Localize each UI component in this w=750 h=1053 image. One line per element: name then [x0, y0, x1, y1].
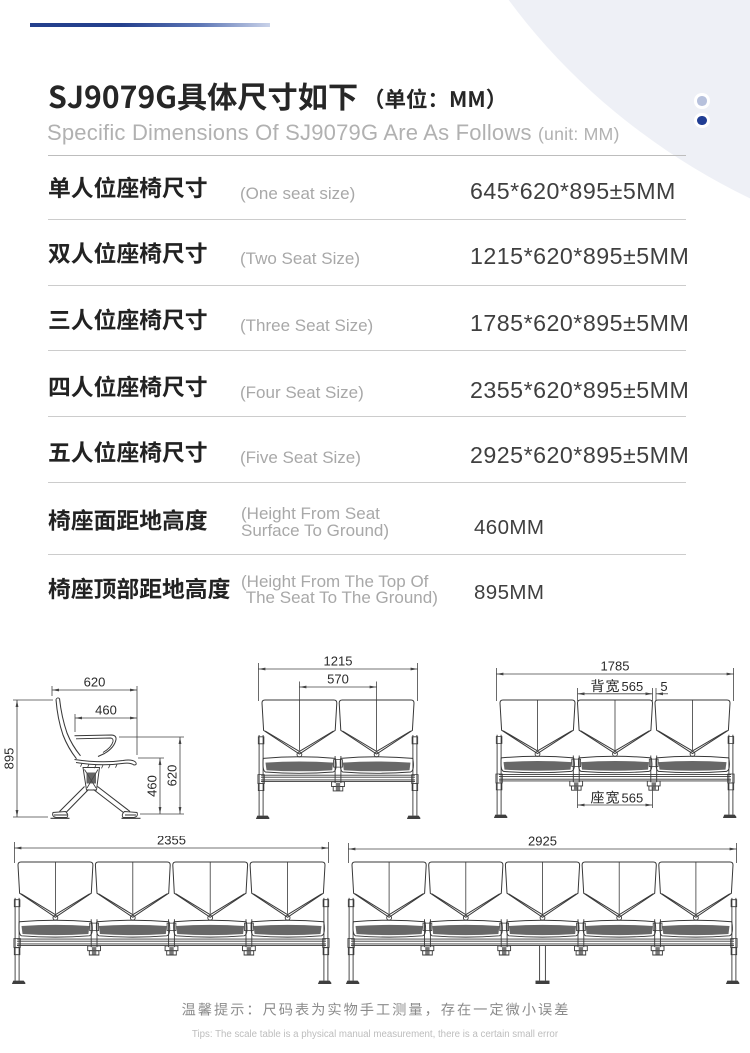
svg-text:460: 460: [95, 703, 117, 718]
svg-text:2355: 2355: [157, 836, 186, 848]
svg-text:620: 620: [84, 675, 106, 690]
svg-text:620: 620: [165, 765, 180, 787]
svg-text:895: 895: [2, 748, 17, 770]
svg-text:2925: 2925: [528, 836, 557, 849]
svg-text:460: 460: [145, 775, 160, 797]
